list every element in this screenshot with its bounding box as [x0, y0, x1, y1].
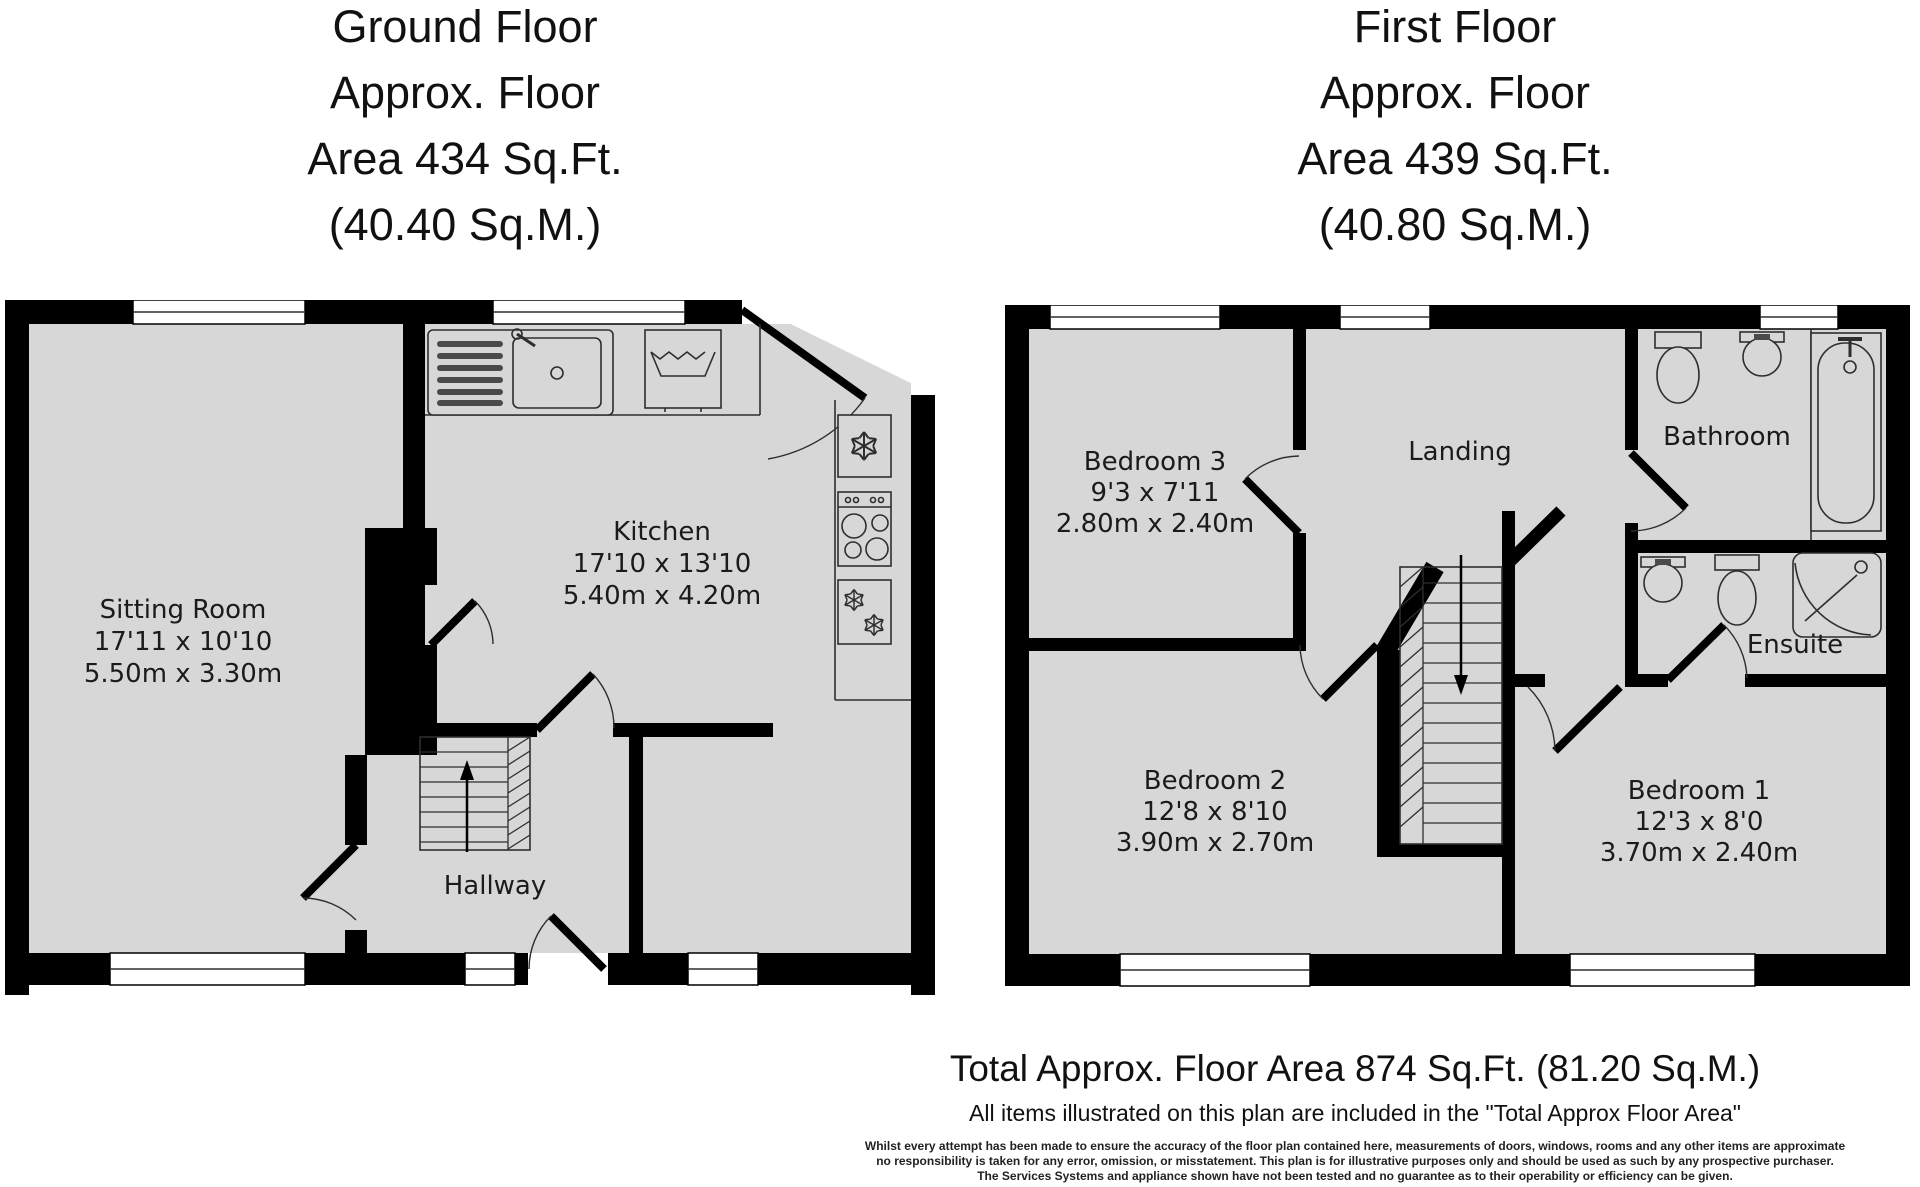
ground-floor-plan: Sitting Room 17'11 x 10'10 5.50m x 3.30m… — [5, 300, 935, 995]
basin-icon — [1740, 332, 1784, 376]
ground-right-wall — [911, 395, 935, 995]
svg-text:12'8 x 8'10: 12'8 x 8'10 — [1142, 797, 1287, 827]
svg-text:12'3 x 8'0: 12'3 x 8'0 — [1635, 807, 1764, 837]
toilet-icon — [1655, 332, 1701, 403]
ensuite-basin-icon — [1641, 557, 1685, 602]
ground-floor-title: Ground Floor Approx. Floor Area 434 Sq.F… — [165, 0, 765, 258]
svg-text:Bedroom 2: Bedroom 2 — [1144, 766, 1286, 796]
landing-label: Landing — [1408, 437, 1512, 467]
fridge-icon — [838, 415, 891, 477]
title-line: Approx. Floor — [1155, 60, 1755, 126]
svg-text:Bedroom 3: Bedroom 3 — [1084, 447, 1226, 477]
footer: Total Approx. Floor Area 874 Sq.Ft. (81.… — [705, 1048, 1920, 1184]
first-floor-plan: Bedroom 3 9'3 x 7'11 2.80m x 2.40m Landi… — [1005, 305, 1910, 990]
hob-icon — [838, 492, 891, 566]
svg-text:3.70m x 2.40m: 3.70m x 2.40m — [1600, 838, 1798, 868]
title-line: Area 439 Sq.Ft. — [1155, 126, 1755, 192]
hallway-label: Hallway — [444, 871, 547, 901]
svg-text:5.40m x 4.20m: 5.40m x 4.20m — [563, 581, 761, 611]
svg-text:17'11 x 10'10: 17'11 x 10'10 — [94, 627, 273, 657]
total-floor-area: Total Approx. Floor Area 874 Sq.Ft. (81.… — [705, 1048, 1920, 1090]
bathroom-label: Bathroom — [1663, 422, 1791, 452]
svg-text:Kitchen: Kitchen — [613, 517, 711, 547]
included-note: All items illustrated on this plan are i… — [705, 1100, 1920, 1127]
title-line: Ground Floor — [165, 0, 765, 60]
sitting-room-label: Sitting Room 17'11 x 10'10 5.50m x 3.30m — [84, 595, 282, 689]
ensuite-label: Ensuite — [1747, 630, 1843, 660]
shower-icon — [1793, 553, 1881, 637]
first-floor-title: First Floor Approx. Floor Area 439 Sq.Ft… — [1155, 0, 1755, 258]
floorplan-page: Ground Floor Approx. Floor Area 434 Sq.F… — [0, 0, 1920, 1187]
title-line: First Floor — [1155, 0, 1755, 60]
title-line: Approx. Floor — [165, 60, 765, 126]
disclaimer-line: no responsibility is taken for any error… — [705, 1154, 1920, 1169]
bedroom2-label: Bedroom 2 12'8 x 8'10 3.90m x 2.70m — [1116, 766, 1314, 858]
svg-text:2.80m x 2.40m: 2.80m x 2.40m — [1056, 509, 1254, 539]
title-line: (40.40 Sq.M.) — [165, 192, 765, 258]
bathtub-icon — [1811, 329, 1881, 540]
svg-text:9'3 x 7'11: 9'3 x 7'11 — [1091, 478, 1220, 508]
svg-text:5.50m x 3.30m: 5.50m x 3.30m — [84, 659, 282, 689]
svg-text:Bedroom 1: Bedroom 1 — [1628, 776, 1770, 806]
washing-machine-icon — [645, 330, 721, 412]
svg-text:17'10 x 13'10: 17'10 x 13'10 — [573, 549, 752, 579]
title-line: (40.80 Sq.M.) — [1155, 192, 1755, 258]
kitchen-sink-icon — [428, 329, 613, 415]
ensuite-toilet-icon — [1715, 555, 1759, 625]
disclaimer-line: Whilst every attempt has been made to en… — [705, 1139, 1920, 1154]
svg-text:3.90m x 2.70m: 3.90m x 2.70m — [1116, 828, 1314, 858]
freezer-icon — [838, 580, 891, 644]
disclaimer-line: The Services Systems and appliance shown… — [705, 1169, 1920, 1184]
disclaimer: Whilst every attempt has been made to en… — [705, 1139, 1920, 1184]
title-line: Area 434 Sq.Ft. — [165, 126, 765, 192]
svg-text:Sitting Room: Sitting Room — [100, 595, 267, 625]
